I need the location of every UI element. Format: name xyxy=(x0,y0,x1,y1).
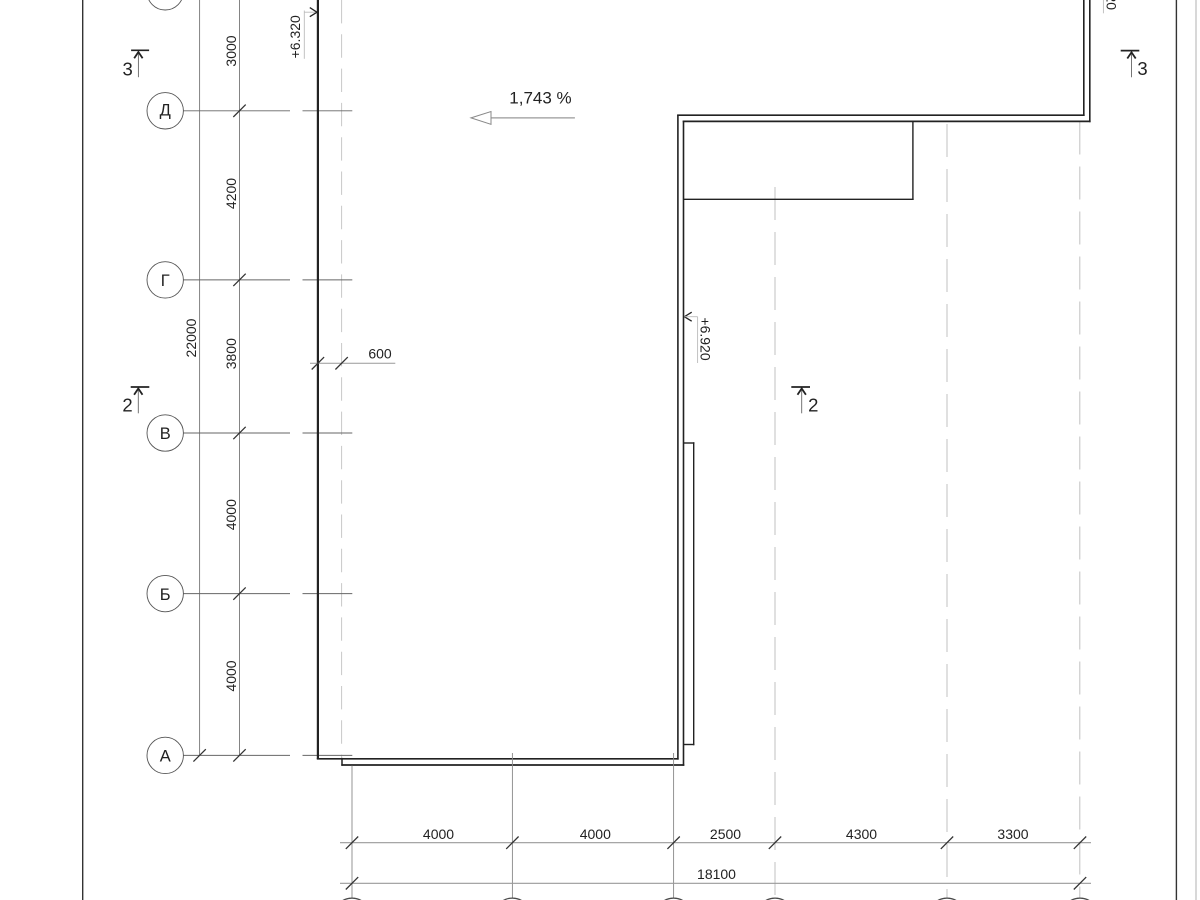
svg-text:Б: Б xyxy=(160,586,171,604)
svg-text:1,743 %: 1,743 % xyxy=(509,88,571,107)
svg-text:4300: 4300 xyxy=(846,826,877,842)
svg-text:3000: 3000 xyxy=(223,35,239,66)
svg-text:3: 3 xyxy=(122,58,132,79)
svg-text:Д: Д xyxy=(160,101,171,119)
svg-text:4000: 4000 xyxy=(223,499,239,530)
svg-text:4000: 4000 xyxy=(423,826,454,842)
svg-text:22000: 22000 xyxy=(183,318,199,357)
svg-text:3300: 3300 xyxy=(997,826,1028,842)
svg-text:2500: 2500 xyxy=(710,826,741,842)
svg-text:+6.320: +6.320 xyxy=(287,15,303,58)
svg-text:4000: 4000 xyxy=(580,826,611,842)
svg-text:3: 3 xyxy=(1137,58,1147,79)
svg-text:600: 600 xyxy=(368,345,392,361)
svg-text:В: В xyxy=(160,425,171,443)
svg-text:+6.320: +6.320 xyxy=(1104,0,1120,10)
svg-text:Г: Г xyxy=(161,272,170,290)
svg-text:2: 2 xyxy=(808,394,818,415)
svg-text:4200: 4200 xyxy=(223,178,239,209)
svg-text:4000: 4000 xyxy=(223,660,239,691)
svg-text:3800: 3800 xyxy=(223,338,239,369)
svg-text:А: А xyxy=(160,747,171,765)
svg-text:+6.920: +6.920 xyxy=(698,317,714,360)
svg-text:18100: 18100 xyxy=(697,866,736,882)
svg-text:2: 2 xyxy=(122,394,132,415)
